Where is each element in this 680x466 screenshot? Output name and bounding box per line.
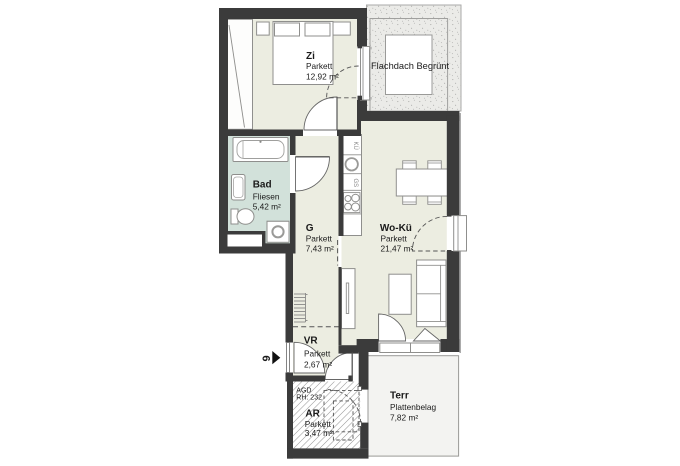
svg-text:3,47 m²: 3,47 m² (305, 428, 333, 438)
svg-text:Plattenbelag: Plattenbelag (390, 402, 437, 412)
svg-text:Parkett: Parkett (381, 233, 408, 243)
svg-text:5,42 m²: 5,42 m² (253, 201, 281, 211)
svg-text:Parkett: Parkett (306, 61, 333, 71)
svg-text:12,92 m²: 12,92 m² (306, 72, 339, 82)
svg-text:21,47 m²: 21,47 m² (381, 243, 414, 253)
svg-text:Zi: Zi (306, 51, 315, 62)
svg-text:Terr: Terr (390, 391, 409, 402)
svg-text:KÜ: KÜ (352, 142, 359, 150)
svg-text:Flachdach Begrünt: Flachdach Begrünt (371, 61, 449, 71)
svg-text:6: 6 (260, 355, 272, 361)
svg-text:7,43 m²: 7,43 m² (306, 243, 334, 253)
svg-text:GS: GS (352, 179, 358, 188)
svg-text:Bad: Bad (253, 179, 272, 190)
svg-text:Fliesen: Fliesen (253, 191, 280, 201)
svg-text:Parkett: Parkett (306, 233, 333, 243)
svg-text:7,82 m²: 7,82 m² (390, 412, 418, 422)
svg-text:Parkett: Parkett (304, 349, 331, 359)
svg-text:2,67 m²: 2,67 m² (304, 360, 332, 370)
svg-text:AR: AR (305, 408, 320, 419)
svg-text:VR: VR (304, 335, 319, 346)
svg-text:AGD: AGD (296, 387, 311, 394)
svg-text:RH: 232: RH: 232 (296, 394, 322, 401)
